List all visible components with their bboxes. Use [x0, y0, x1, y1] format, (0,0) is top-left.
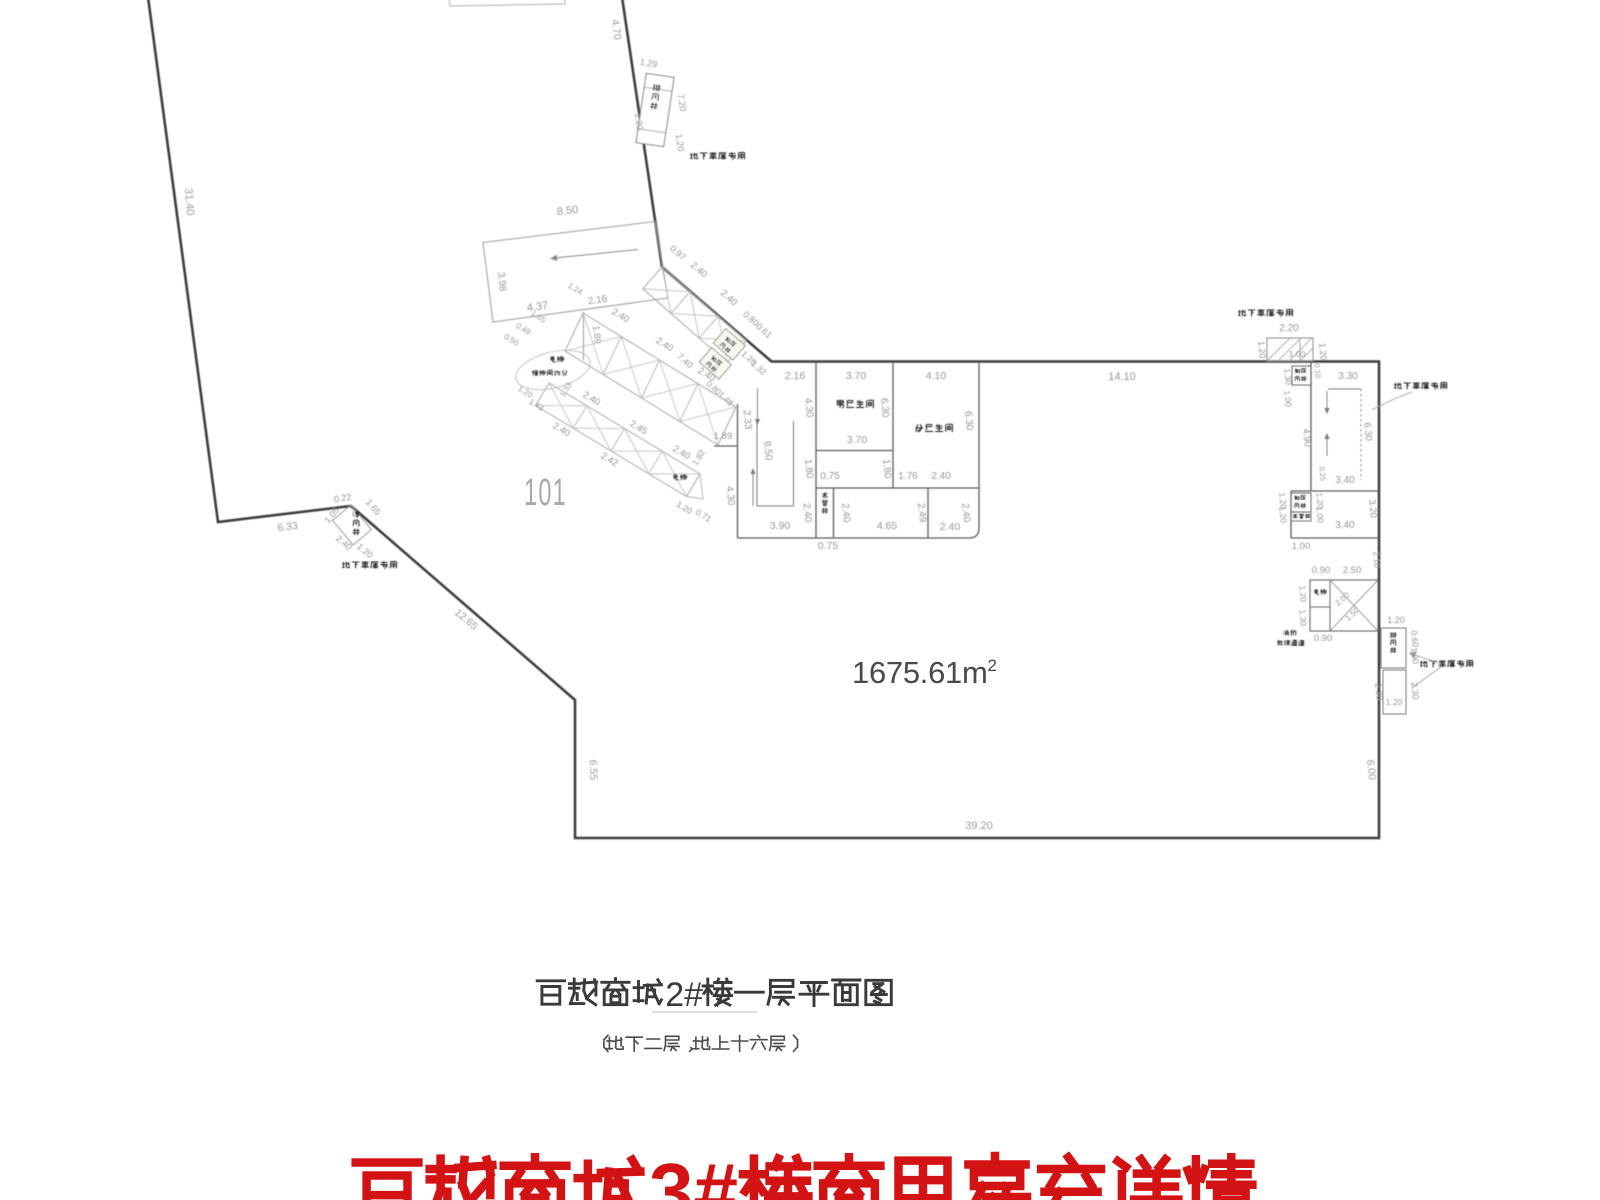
svg-text:4.65: 4.65 — [877, 520, 898, 532]
svg-text:2#: 2# — [665, 976, 703, 1014]
svg-text:1.20: 1.20 — [1387, 615, 1405, 625]
svg-text:2.40: 2.40 — [839, 502, 852, 523]
svg-text:6.30: 6.30 — [962, 410, 975, 431]
svg-text:1.30: 1.30 — [1297, 609, 1309, 627]
svg-text:0.25: 0.25 — [1317, 466, 1327, 481]
svg-text:0.60: 0.60 — [1409, 630, 1421, 648]
svg-text:3.20: 3.20 — [1366, 499, 1379, 519]
svg-text:2.50: 2.50 — [1343, 565, 1362, 576]
svg-text:2.30: 2.30 — [1373, 682, 1385, 700]
svg-text:2.16: 2.16 — [785, 370, 806, 382]
svg-text:3.40: 3.40 — [1335, 520, 1355, 531]
svg-text:4.10: 4.10 — [926, 370, 947, 382]
svg-text:1.00: 1.00 — [1282, 390, 1294, 408]
svg-text:3.70: 3.70 — [846, 370, 867, 382]
svg-text:1.89: 1.89 — [714, 431, 733, 442]
svg-text:1.20: 1.20 — [1386, 697, 1403, 707]
svg-text:0.90: 0.90 — [1314, 633, 1333, 644]
svg-text:3.40: 3.40 — [1335, 475, 1355, 486]
svg-text:6.30: 6.30 — [1361, 422, 1374, 442]
svg-text:4.30: 4.30 — [723, 485, 736, 506]
svg-text:1.20: 1.20 — [1256, 340, 1268, 358]
svg-text:6.00: 6.00 — [1364, 759, 1378, 781]
svg-text:39.20: 39.20 — [965, 820, 993, 832]
svg-text:2.40: 2.40 — [800, 502, 813, 523]
svg-text:1.00: 1.00 — [1314, 506, 1326, 524]
svg-text:1.76: 1.76 — [898, 471, 918, 482]
svg-text:31.40: 31.40 — [182, 188, 196, 216]
svg-text:3#: 3# — [649, 1147, 738, 1200]
svg-text:0.75: 0.75 — [818, 540, 839, 552]
svg-text:6.30: 6.30 — [878, 397, 891, 418]
svg-text:4.30: 4.30 — [802, 397, 815, 418]
svg-text:3.70: 3.70 — [847, 434, 868, 446]
svg-text:2.30: 2.30 — [1409, 681, 1421, 699]
svg-text:0.90: 0.90 — [1312, 565, 1331, 576]
svg-text:6.55: 6.55 — [587, 759, 600, 780]
svg-text:101: 101 — [524, 470, 567, 513]
svg-text:2.40: 2.40 — [959, 502, 972, 523]
svg-text:2.40: 2.40 — [940, 521, 961, 533]
svg-text:1.20: 1.20 — [1297, 585, 1309, 603]
svg-text:6.33: 6.33 — [277, 520, 299, 534]
svg-text:2.33: 2.33 — [740, 409, 753, 430]
svg-text:1.00: 1.00 — [1289, 349, 1306, 359]
svg-text:1.30: 1.30 — [1282, 368, 1294, 386]
svg-text:14.10: 14.10 — [1108, 371, 1136, 383]
svg-text:2.20: 2.20 — [1279, 323, 1299, 334]
svg-text:4.90: 4.90 — [1300, 428, 1313, 448]
svg-text:1.80: 1.80 — [802, 458, 815, 479]
svg-text:2.49: 2.49 — [915, 502, 928, 523]
svg-text:3.90: 3.90 — [770, 520, 791, 532]
svg-text:1.90: 1.90 — [1409, 647, 1421, 665]
svg-text:1675.61m2: 1675.61m2 — [852, 655, 997, 690]
svg-text:1.20: 1.20 — [1277, 506, 1289, 524]
svg-text:2.10: 2.10 — [1371, 551, 1383, 569]
svg-text:1.00: 1.00 — [1292, 541, 1311, 552]
svg-text:8.50: 8.50 — [761, 440, 774, 461]
svg-text:1.20: 1.20 — [1317, 342, 1329, 360]
svg-text:3.30: 3.30 — [1338, 371, 1358, 382]
svg-text:2.40: 2.40 — [931, 471, 951, 482]
svg-text:0.10: 0.10 — [1312, 363, 1322, 378]
svg-text:3.98: 3.98 — [495, 271, 508, 292]
svg-text:1.80: 1.80 — [880, 458, 893, 479]
svg-text:0.75: 0.75 — [820, 471, 840, 482]
